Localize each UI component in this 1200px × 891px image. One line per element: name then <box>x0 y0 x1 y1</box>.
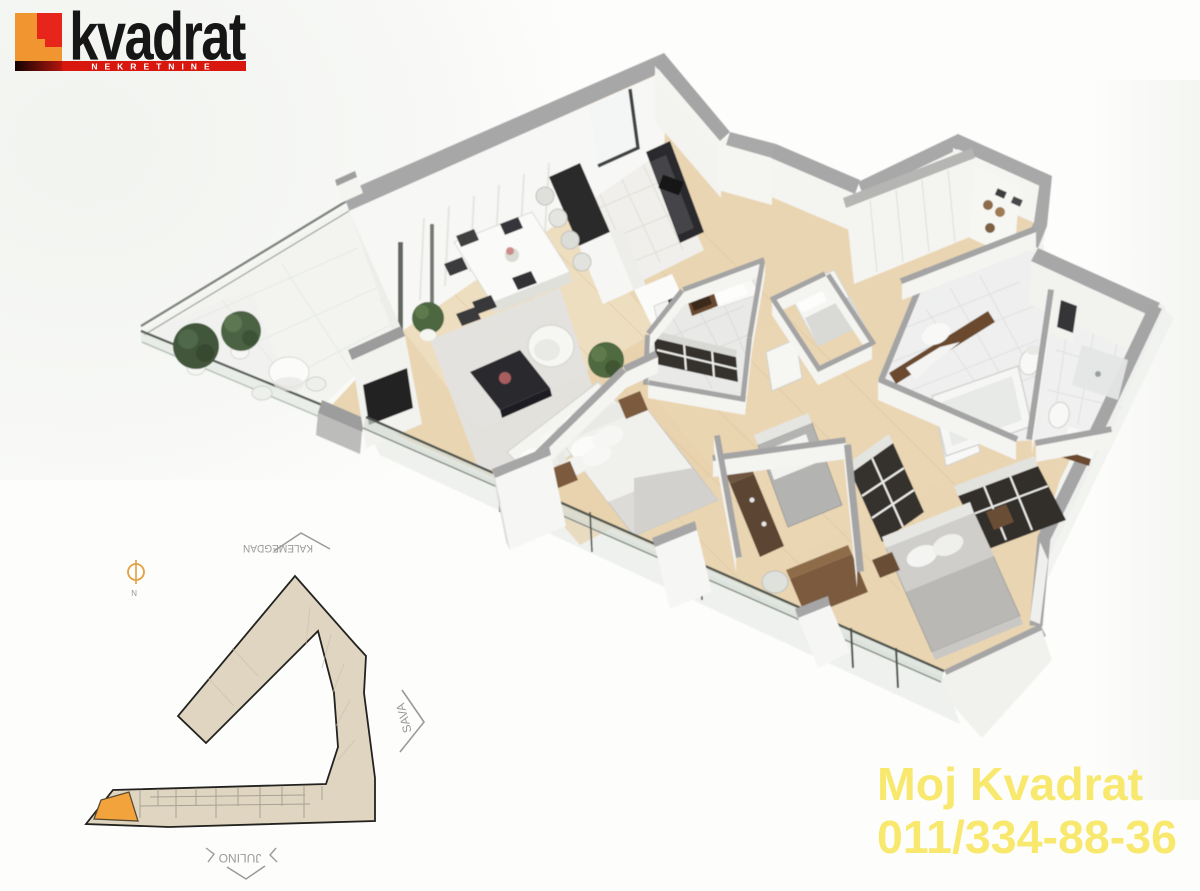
svg-text:JULINO: JULINO <box>219 851 262 865</box>
svg-text:011/334-88-36: 011/334-88-36 <box>877 811 1177 863</box>
svg-text:N: N <box>131 588 137 597</box>
svg-text:KALEMEGDAN: KALEMEGDAN <box>243 542 313 554</box>
svg-text:NEKRETNINE: NEKRETNINE <box>91 62 216 72</box>
svg-text:Moj Kvadrat: Moj Kvadrat <box>877 758 1143 810</box>
